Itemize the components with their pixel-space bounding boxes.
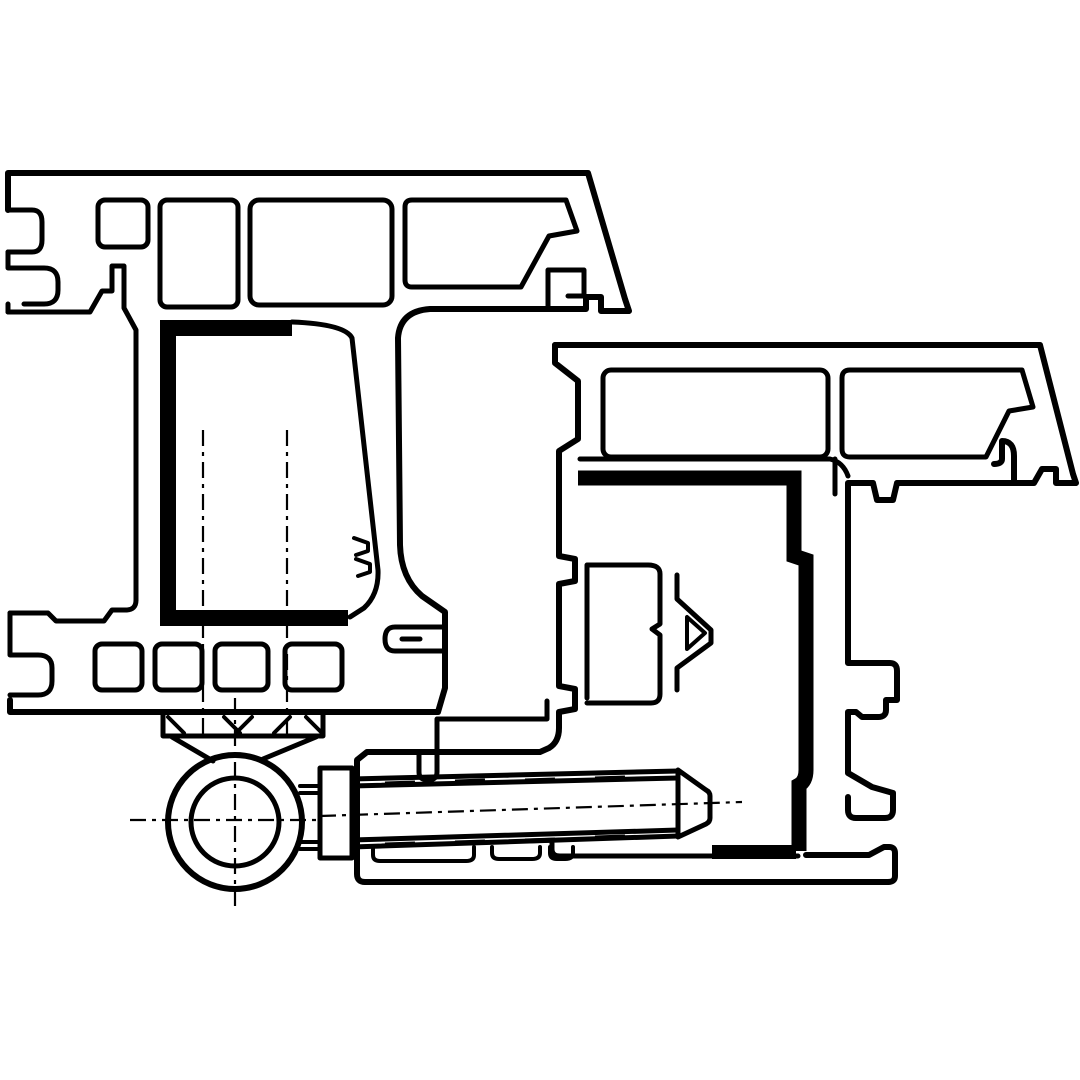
frame-chamber-2 xyxy=(160,200,238,307)
frame-left-groove-bottom xyxy=(10,613,52,712)
drawing-canvas xyxy=(0,0,1080,1080)
frame-outer-contour xyxy=(8,173,629,712)
frame-glazing-hook xyxy=(548,270,584,309)
frame-bottom-chamber-2 xyxy=(155,644,202,690)
mounting-block-hatches xyxy=(168,717,322,733)
frame-chamber-3 xyxy=(250,200,392,305)
frame-bottom-chamber-4 xyxy=(285,644,342,690)
frame-bottom-chamber-3 xyxy=(215,644,268,690)
frame-bottom-claw-notch xyxy=(385,627,445,651)
frame-chamber-4 xyxy=(405,200,577,287)
hinge-pin-bore xyxy=(191,778,279,866)
frame-left-groove-mid xyxy=(8,252,58,312)
frame-pocket-teeth xyxy=(354,538,370,576)
sash-outer-contour xyxy=(555,345,1076,818)
sash-gasket xyxy=(578,478,806,851)
sash-platform xyxy=(437,701,547,752)
screw-washer xyxy=(320,768,352,858)
sash-hardware-chamber xyxy=(587,565,660,703)
frame-bottomband-top-contour xyxy=(10,600,136,621)
frame-left-groove-top xyxy=(8,210,42,252)
sash-left-contour xyxy=(357,345,895,882)
frame-profile xyxy=(8,173,629,712)
frame-rebate-step xyxy=(8,266,136,600)
frame-chamber-small xyxy=(98,200,148,247)
hinge-cross-section-diagram xyxy=(0,0,1080,1080)
sash-arm-channels xyxy=(373,847,573,861)
sash-profile xyxy=(357,345,1076,882)
frame-gasket xyxy=(168,328,348,618)
frame-bottom-chamber-1 xyxy=(95,644,142,690)
sash-chamber-1 xyxy=(603,370,828,457)
